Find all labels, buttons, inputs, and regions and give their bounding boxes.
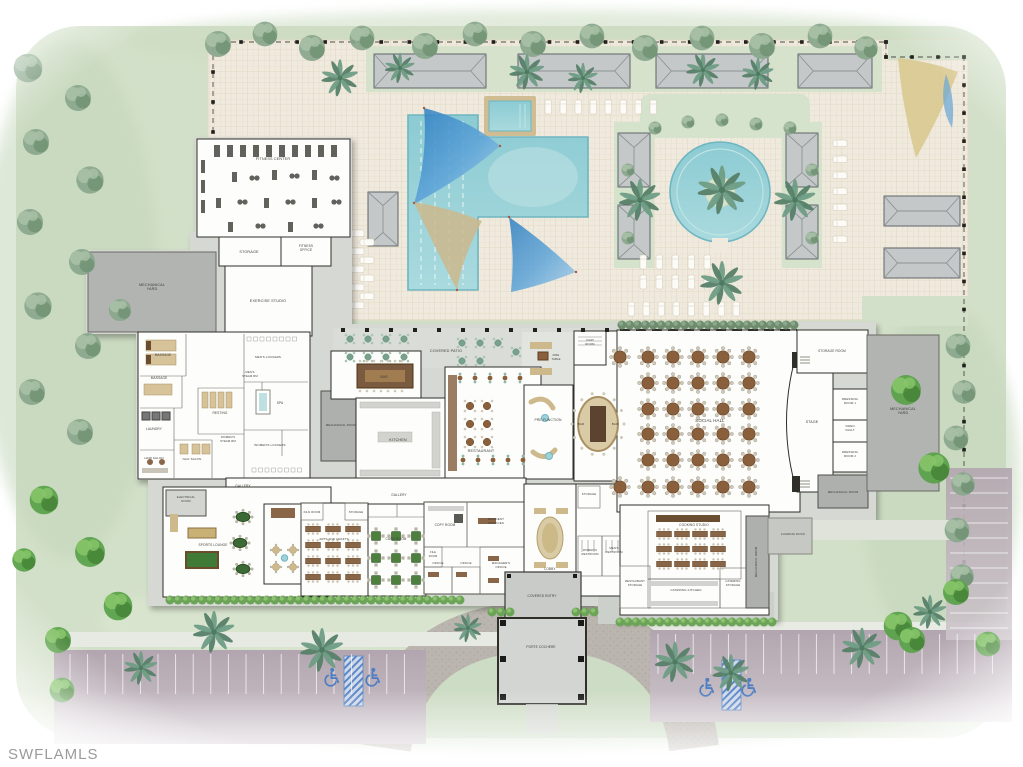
room-label-covered-patio: COVERED PATIO [430, 349, 462, 353]
room-label-resting: RESTING [212, 411, 227, 415]
room-label-catering-kitchen: CATERING KITCHEN [670, 588, 701, 592]
canopy-tree [30, 486, 59, 515]
canopy-tree [918, 452, 949, 483]
gym-equipment [240, 145, 246, 157]
sage-tree [944, 426, 969, 451]
room-label-laundry: LAUNDRY [146, 427, 163, 431]
craft-table [675, 558, 690, 570]
craft-table [306, 555, 321, 567]
room-label-office-2: OFFICE [460, 561, 471, 565]
pool-lounger [560, 100, 567, 114]
sage-tree [682, 116, 695, 129]
room-label-social-hall: SOCIAL HALL [695, 418, 725, 423]
loading-dock [768, 518, 812, 554]
boundary-marker [962, 139, 966, 143]
boundary-marker [211, 70, 215, 74]
craft-table [657, 558, 672, 570]
pool-lounger [833, 236, 847, 243]
gym-equipment [266, 145, 272, 157]
craft-table [346, 571, 361, 583]
gym-equipment [279, 145, 285, 157]
boundary-marker [716, 40, 720, 44]
banquet-table [713, 424, 734, 445]
banquet-table [663, 347, 684, 368]
room-label-kiln-room: KILN ROOM [304, 510, 321, 514]
boundary-marker [962, 448, 966, 452]
boundary-marker [962, 308, 966, 312]
room-label-arts-and-crafts: ARTS AND CRAFTS [319, 537, 349, 541]
craft-table [693, 543, 708, 555]
pool-lounger [350, 284, 364, 291]
pool-lounger [650, 100, 657, 114]
pool-lounger [628, 302, 635, 316]
room-label-loading-dock: LOADING DOCK [781, 532, 805, 536]
pool-lounger [590, 100, 597, 114]
pool-lounger [620, 100, 627, 114]
room-label-fitness-office: FITNESSOFFICE [299, 244, 313, 252]
gym-equipment [318, 145, 324, 157]
sage-tree [67, 419, 93, 445]
sage-tree [17, 209, 43, 235]
craft-table [346, 555, 361, 567]
craft-table [326, 523, 341, 535]
cabana-roof [884, 248, 960, 278]
sage-tree [951, 472, 974, 495]
sage-tree [463, 22, 488, 47]
boundary-marker [962, 420, 966, 424]
boundary-marker [211, 130, 215, 134]
craft-table [306, 571, 321, 583]
room-label-video-vault: VIDEOVAULT [845, 424, 855, 432]
handicap-access-aisle [344, 656, 363, 706]
pool-lounger [688, 255, 695, 269]
boundary-marker [407, 40, 411, 44]
pool-lounger [635, 100, 642, 114]
pool-lounger [643, 302, 650, 316]
pool-lounger [350, 230, 364, 237]
boundary-marker [962, 83, 966, 87]
room-label-womens-restroom: WOMEN'SRESTROOM [581, 548, 599, 556]
pool-lounger [704, 255, 711, 269]
pool-lounger [656, 255, 663, 269]
mls-watermark: SWFLAMLS [8, 746, 99, 763]
room-label-resident-services: RESIDENTSERVICES [488, 517, 504, 525]
gym-equipment [331, 145, 337, 157]
room-label-womens-lockers: WOMEN'S LOCKERS [254, 443, 285, 447]
banquet-table [713, 477, 734, 498]
banquet-table [739, 347, 760, 368]
room-label-copy-room: COPY ROOM [435, 523, 456, 527]
pool-lounger [360, 239, 374, 246]
canopy-tree [12, 548, 35, 571]
canopy-tree [75, 537, 105, 567]
boundary-marker [962, 224, 966, 228]
canopy-tree [50, 678, 75, 703]
pool-lounger [658, 302, 665, 316]
porte-cochere [498, 618, 586, 704]
room-label-pre-function: PRE-FUNCTION [534, 418, 561, 422]
banquet-table [638, 450, 659, 471]
room-label-storage-arts: STORAGE [349, 510, 363, 514]
room-label-porte-cochere: PORTE COCHERE [526, 645, 555, 649]
banquet-table [688, 424, 709, 445]
pool-lounger [672, 255, 679, 269]
room-label-restaurant: RESTAURANT [468, 449, 495, 453]
canopy-tree [45, 627, 71, 653]
boundary-marker [239, 40, 243, 44]
boundary-marker [660, 40, 664, 44]
pool-lounger [672, 275, 679, 289]
banquet-table [739, 450, 760, 471]
banquet-table [663, 424, 684, 445]
banquet-table [688, 373, 709, 394]
site-plan-image: FITNESS CENTERSTORAGEFITNESSOFFICEEXERCI… [0, 0, 1023, 767]
boundary-marker [379, 40, 383, 44]
room-label-bar-oval-left: BAR [578, 422, 585, 426]
canopy-tree [899, 627, 925, 653]
room-label-massage-2: MASSAGE [151, 376, 168, 380]
pool-lounger [833, 172, 847, 179]
gym-equipment [292, 145, 298, 157]
sage-tree [350, 26, 375, 51]
pool-lounger [833, 204, 847, 211]
canopy-tree [104, 592, 133, 621]
banquet-table [688, 347, 709, 368]
cabana-roof [368, 192, 398, 246]
banquet-table [713, 347, 734, 368]
room-label-catering-storage: CATERINGSTORAGE [725, 579, 740, 587]
canopy-tree [943, 579, 969, 605]
banquet-table [663, 477, 684, 498]
pool-lounger [640, 275, 647, 289]
sage-tree [23, 129, 49, 155]
banquet-table [713, 399, 734, 420]
pool-lounger [350, 248, 364, 255]
room-label-stage: STAGE [806, 420, 819, 424]
room-label-lobby: LOBBY [544, 567, 556, 571]
pool-lounger [833, 188, 847, 195]
craft-table [711, 528, 726, 540]
room-label-card-room: CARD ROOM [386, 537, 407, 541]
sage-tree [580, 24, 605, 49]
banquet-table [739, 424, 760, 445]
room-label-gallery-west: GALLERY [235, 484, 251, 488]
mechanical-yard-west [88, 252, 216, 332]
banquet-table [663, 399, 684, 420]
banquet-table [663, 450, 684, 471]
pool-lounger [350, 266, 364, 273]
boundary-marker [962, 167, 966, 171]
room-label-bar-main: BAR [380, 375, 388, 379]
cabana-roof [618, 133, 650, 187]
sage-tree [649, 122, 662, 135]
boundary-marker [492, 40, 496, 44]
gym-equipment [214, 145, 220, 157]
pool-lounger [640, 255, 647, 269]
sage-tree [946, 334, 971, 359]
sage-tree [690, 26, 715, 51]
room-label-restaurant-storage: RESTAURANTSTORAGE [625, 579, 645, 587]
cabana-roof [618, 205, 650, 259]
room-label-massage-1: MASSAGE [155, 353, 172, 357]
pool-lounger [833, 140, 847, 147]
craft-table [657, 543, 672, 555]
sage-tree [808, 24, 833, 49]
pool-lounger [733, 302, 740, 316]
boundary-marker [548, 40, 552, 44]
pool-lounger [360, 257, 374, 264]
boundary-marker [884, 40, 888, 44]
room-label-mechanical-room-center: MECHANICAL ROOM [326, 423, 357, 427]
room-label-gallery-center: GALLERY [391, 493, 407, 497]
boundary-marker [962, 55, 966, 59]
banquet-table [638, 424, 659, 445]
parking-lot-southeast [650, 630, 1012, 722]
room-label-sports-lounge: SPORTS LOUNGE [199, 543, 228, 547]
room-label-fire-table: FIRETABLE [551, 353, 560, 361]
sage-tree [109, 299, 131, 321]
pool-lounger [605, 100, 612, 114]
craft-table [326, 555, 341, 567]
cabana-roof [798, 54, 872, 88]
craft-table [675, 528, 690, 540]
pool-lounger [360, 275, 374, 282]
banquet-table [688, 477, 709, 498]
boundary-marker [884, 55, 888, 59]
sage-tree [253, 22, 278, 47]
banquet-table [739, 399, 760, 420]
boundary-marker [604, 40, 608, 44]
pool-lounger [703, 302, 710, 316]
sage-tree [622, 164, 635, 177]
room-label-coat-room: COATROOM [585, 338, 595, 346]
boundary-marker [962, 111, 966, 115]
banquet-table [713, 373, 734, 394]
boundary-marker [211, 100, 215, 104]
sage-tree [952, 380, 975, 403]
craft-table [693, 558, 708, 570]
sage-tree [784, 122, 797, 135]
pool-lounger [575, 100, 582, 114]
cabana-roof [786, 133, 818, 187]
room-label-mechanical-room-stage: MECHANICAL ROOM [828, 490, 859, 494]
pool-lounger [833, 156, 847, 163]
room-label-mens-lockers: MEN'S LOCKERS [255, 355, 281, 359]
sage-tree [69, 249, 95, 275]
banquet-table [610, 477, 631, 498]
room-label-covered-entry: COVERED ENTRY [528, 594, 558, 598]
banquet-table [739, 477, 760, 498]
boundary-marker [962, 195, 966, 199]
sage-tree [806, 232, 819, 245]
banquet-table [638, 347, 659, 368]
room-label-office-1: OFFICE [432, 561, 443, 565]
room-coat [574, 331, 606, 365]
canopy-tree [976, 632, 1001, 657]
parking-lot-southwest [54, 650, 426, 744]
sage-tree [632, 35, 658, 61]
room-label-kitchen: KITCHEN [389, 438, 407, 442]
site-plan-page: FITNESS CENTERSTORAGEFITNESSOFFICEEXERCI… [0, 0, 1023, 767]
banquet-table [688, 450, 709, 471]
craft-table [675, 543, 690, 555]
banquet-table [739, 373, 760, 394]
boundary-marker [910, 55, 914, 59]
boundary-marker [962, 364, 966, 368]
cabana-roof [884, 196, 960, 226]
room-label-spa: SPA [277, 401, 284, 405]
craft-table [657, 528, 672, 540]
banquet-table [663, 373, 684, 394]
sage-tree [749, 33, 775, 59]
sage-tree [945, 518, 970, 543]
boundary-marker [800, 40, 804, 44]
craft-table [306, 523, 321, 535]
boundary-marker [936, 55, 940, 59]
sage-tree [75, 333, 101, 359]
sage-tree [24, 292, 51, 319]
sage-tree [299, 35, 325, 61]
craft-table [326, 571, 341, 583]
room-label-storage-lobby: STORAGE [582, 492, 596, 496]
gym-equipment [305, 145, 311, 157]
banquet-table [713, 450, 734, 471]
pool-lounger [545, 100, 552, 114]
sage-tree [806, 164, 819, 177]
sage-tree [76, 166, 103, 193]
boundary-marker [962, 252, 966, 256]
sage-tree [205, 31, 231, 57]
room-label-mechanical-room-east: MECHANICAL ROOM [754, 546, 758, 577]
craft-table [346, 523, 361, 535]
banquet-table [688, 399, 709, 420]
pool-lounger [688, 302, 695, 316]
sage-tree [854, 36, 877, 59]
pool-lounger [673, 302, 680, 316]
room-label-bar-oval-right: BAR [612, 422, 619, 426]
banquet-table [638, 399, 659, 420]
sage-tree [520, 31, 546, 57]
craft-table [693, 528, 708, 540]
room-label-hair-salon: HAIR SALON [144, 456, 163, 460]
room-label-fitness-center: FITNESS CENTER [256, 157, 291, 161]
craft-table [711, 558, 726, 570]
sage-tree [622, 232, 635, 245]
craft-table [711, 543, 726, 555]
boundary-marker [295, 40, 299, 44]
room-label-nail-salon: NAIL SALON [183, 457, 202, 461]
pool-lounger [656, 275, 663, 289]
room-label-exercise-studio: EXERCISE STUDIO [250, 299, 286, 303]
boundary-marker [576, 40, 580, 44]
pool-lounger [350, 302, 364, 309]
sage-tree [412, 33, 438, 59]
pool-lounger [833, 220, 847, 227]
room-label-womens-steam: WOMEN'SSTEAM RM [220, 435, 236, 443]
boundary-marker [962, 280, 966, 284]
banquet-table [638, 477, 659, 498]
room-label-storage-room-stage: STORAGE ROOM [818, 349, 846, 353]
sage-tree [750, 118, 763, 131]
pool-lounger [688, 275, 695, 289]
canopy-tree [891, 375, 921, 405]
parking-lot-east [946, 468, 1012, 640]
boundary-marker [744, 40, 748, 44]
sage-tree [19, 379, 45, 405]
room-label-storage-fitness: STORAGE [239, 250, 259, 254]
gym-equipment [253, 145, 259, 157]
sage-tree [14, 54, 43, 83]
room-label-cooking-studio: COOKING STUDIO [679, 523, 709, 527]
pool-lounger [360, 293, 374, 300]
banquet-table [638, 373, 659, 394]
banquet-table [610, 347, 631, 368]
sage-tree [716, 114, 729, 127]
gym-equipment [227, 145, 233, 157]
sage-tree [65, 85, 91, 111]
